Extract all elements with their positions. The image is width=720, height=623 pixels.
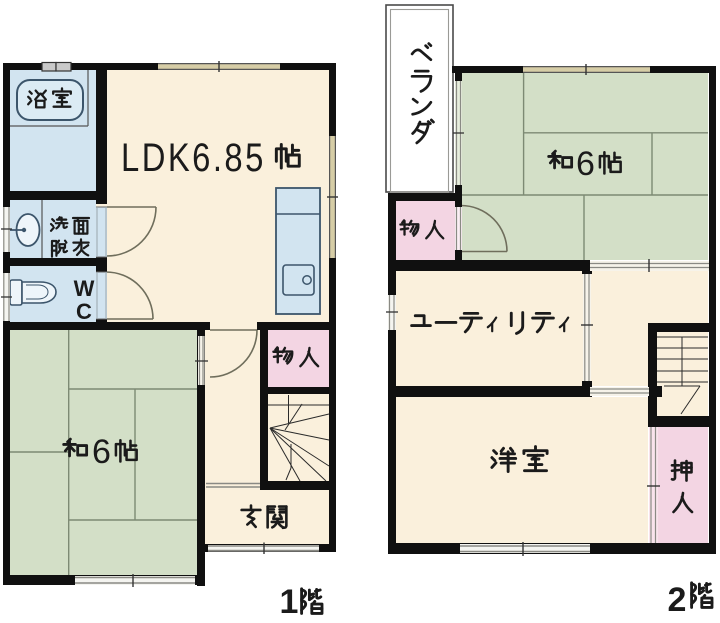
svg-text:1: 1	[280, 583, 299, 618]
svg-text:W: W	[74, 276, 95, 301]
svg-text:LDK6.85: LDK6.85	[121, 135, 266, 180]
svg-text:2: 2	[668, 581, 687, 618]
svg-text:6: 6	[576, 145, 595, 183]
svg-text:C: C	[76, 299, 92, 324]
svg-text:6: 6	[92, 433, 111, 471]
